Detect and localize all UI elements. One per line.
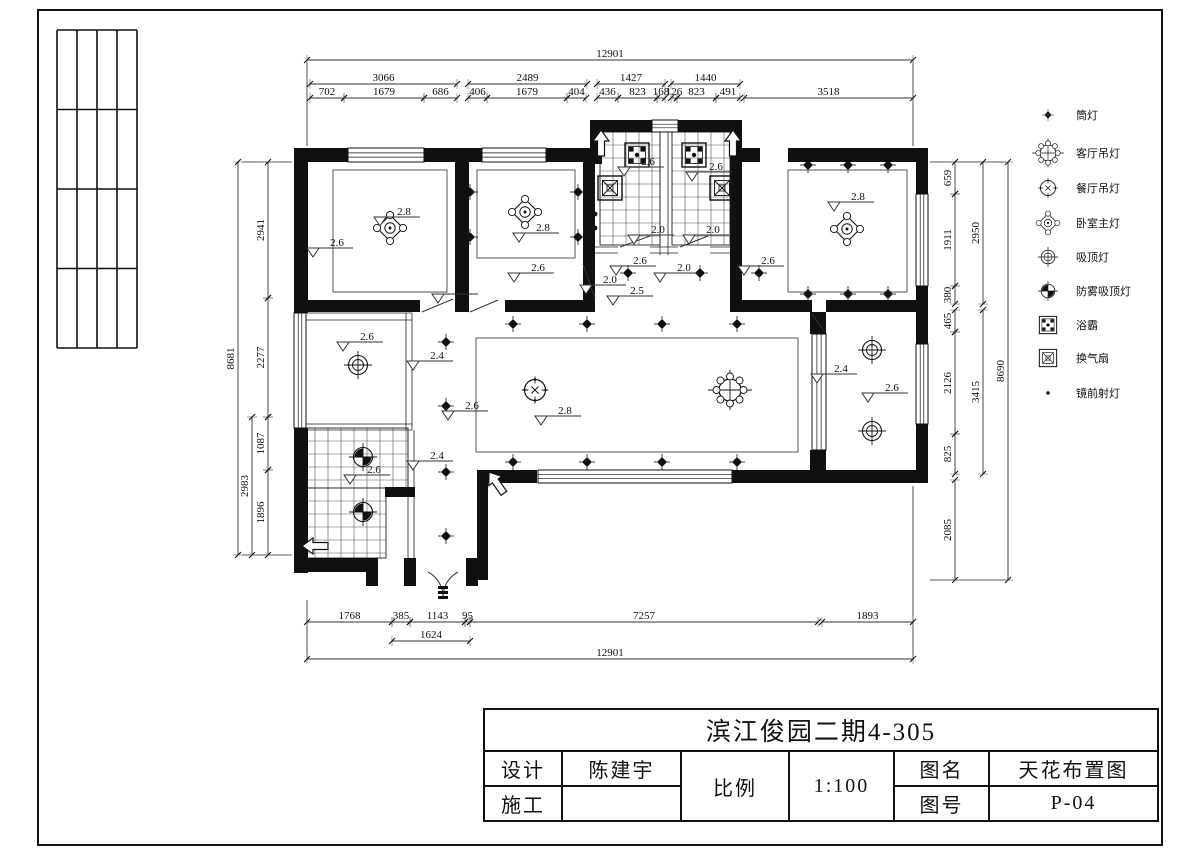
- dim-label: 825: [942, 445, 954, 462]
- downlight-icon: [1028, 98, 1068, 132]
- dim-label: 1427: [620, 72, 643, 84]
- fog-ceiling-lamp-symbol: [1038, 281, 1058, 301]
- wall: [505, 300, 585, 312]
- dim-label: 1143: [427, 610, 449, 622]
- dim-label: 1911: [942, 229, 954, 251]
- elevation-marker: 2.4: [407, 350, 453, 370]
- dim-label: 2.6: [633, 255, 647, 267]
- downlight-symbol: [800, 286, 816, 302]
- dim-label: 2.4: [430, 350, 444, 362]
- dim-label: 659: [942, 169, 954, 186]
- mirror-spotlight-symbol: [736, 212, 741, 217]
- window: [652, 120, 678, 132]
- dim-label: 2.0: [651, 224, 665, 236]
- legend-label: 吸顶灯: [1076, 249, 1109, 265]
- elevation-marker: 2.6: [442, 400, 488, 420]
- dim-label: 2.6: [709, 161, 723, 173]
- threshold-hatch: [438, 586, 448, 589]
- legend-label: 卧室主灯: [1076, 215, 1120, 231]
- design-label: 设计: [485, 752, 561, 787]
- downlight-symbol: [1042, 109, 1054, 121]
- wall: [385, 487, 415, 497]
- dim-label: 1679: [516, 86, 539, 98]
- elevation-marker: 2.6: [862, 382, 908, 402]
- downlight-symbol: [880, 286, 896, 302]
- dining-chandelier-icon: [1028, 171, 1068, 205]
- dim-label: 2.8: [558, 405, 572, 417]
- dim-label: 2.8: [851, 191, 865, 203]
- dim-label: 2.6: [531, 262, 545, 274]
- window: [294, 313, 306, 428]
- elevation-marker: 2.0: [628, 224, 674, 244]
- downlight-symbol: [438, 464, 454, 480]
- dim-label: 8690: [995, 360, 1007, 383]
- wall: [366, 558, 378, 586]
- dimension-chain: 8690: [995, 159, 1013, 583]
- dim-label: 2.0: [455, 283, 469, 295]
- bedroom-main-symbol: [830, 212, 863, 245]
- dim-label: 385: [393, 610, 410, 622]
- dimension-chain: 8681: [225, 159, 243, 558]
- wall: [404, 558, 416, 586]
- dim-label: 823: [688, 86, 705, 98]
- bath-heater-symbol: [682, 143, 706, 167]
- threshold-hatch: [438, 591, 448, 594]
- dim-label: 2.8: [536, 222, 550, 234]
- fog-ceiling-lamp-icon: [1028, 274, 1068, 308]
- window: [348, 148, 424, 162]
- ceiling-lamp-symbol: [858, 417, 886, 445]
- dim-label: 406: [469, 86, 486, 98]
- exhaust-fan-symbol: [1039, 349, 1056, 366]
- legend-item-bath-heater: 浴霸: [1028, 308, 1098, 342]
- scale-label: 比例: [682, 752, 788, 820]
- downlight-symbol: [438, 334, 454, 350]
- wall: [294, 300, 344, 312]
- dim-label: 2.5: [630, 285, 644, 297]
- elevation-marker: 2.6: [508, 262, 554, 282]
- dim-label: 7257: [633, 610, 656, 622]
- downlight-symbol: [654, 454, 670, 470]
- dimension-chain: 2941227710871896: [255, 159, 273, 558]
- dim-label: 1893: [857, 610, 880, 622]
- dimension-chain: 29503415: [970, 159, 988, 477]
- dim-label: 2489: [517, 72, 540, 84]
- living-chandelier-symbol: [708, 370, 752, 410]
- dim-label: 465: [942, 312, 954, 329]
- window: [916, 194, 928, 286]
- dim-label: 2.6: [360, 331, 374, 343]
- dim-label: 2.8: [397, 206, 411, 218]
- window: [538, 470, 732, 483]
- dim-label: 3518: [818, 86, 841, 98]
- wall: [916, 162, 928, 194]
- legend-item-mirror-spotlight: 镜前射灯: [1028, 376, 1120, 410]
- title-block: 滨江俊园二期4-305 设计 施工 陈建宇 比例 1:100 图名 图号 天花布…: [483, 708, 1159, 822]
- legend-label: 筒灯: [1076, 107, 1098, 123]
- downlight-symbol: [438, 528, 454, 544]
- legend-label: 餐厅吊灯: [1076, 180, 1120, 196]
- wall: [546, 148, 592, 162]
- elevation-marker: 2.8: [828, 191, 874, 211]
- downlight-symbol: [579, 316, 595, 332]
- legend-item-bedroom-main: 卧室主灯: [1028, 206, 1120, 240]
- downlight-symbol: [729, 454, 745, 470]
- elevation-marker: 2.8: [374, 206, 420, 226]
- dim-label: 3415: [970, 381, 982, 404]
- downlight-symbol: [751, 265, 767, 281]
- dim-label: 2277: [255, 346, 267, 369]
- downlight-symbol: [840, 286, 856, 302]
- ceiling-lamp-symbol: [344, 351, 372, 379]
- fold-grid: [57, 30, 137, 348]
- dim-label: 2.6: [465, 400, 479, 412]
- mirror-spotlight-icon: [1028, 376, 1068, 410]
- dim-label: 8681: [225, 348, 237, 370]
- elevation-marker: 2.0: [683, 224, 729, 244]
- mirror-spotlight-symbol: [593, 212, 598, 217]
- door-swing: [443, 572, 458, 598]
- wall: [294, 148, 308, 313]
- drawing-name-label: 图名: [895, 752, 988, 787]
- dim-label: 491: [720, 86, 737, 98]
- dim-label: 823: [629, 86, 646, 98]
- legend-label: 防雾吸顶灯: [1076, 283, 1131, 299]
- downlight-symbol: [505, 454, 521, 470]
- window: [812, 334, 826, 450]
- downlight-symbol: [505, 316, 521, 332]
- wall: [294, 558, 366, 572]
- dim-label: 2983: [239, 475, 251, 498]
- legend-item-fog-ceiling-lamp: 防雾吸顶灯: [1028, 274, 1131, 308]
- dim-label: 2941: [255, 219, 267, 241]
- elevation-marker: 2.6: [337, 331, 383, 351]
- dim-label: 2.6: [367, 464, 381, 476]
- elevation-marker: 2.6: [610, 255, 656, 275]
- dim-label: 2.6: [885, 382, 899, 394]
- dim-label: 1896: [255, 501, 267, 524]
- ceiling-lamp-symbol: [1038, 247, 1058, 267]
- dim-label: 2.6: [761, 255, 775, 267]
- dim-label: 126: [666, 86, 683, 98]
- dim-label: 1768: [339, 610, 362, 622]
- wall: [732, 470, 928, 483]
- dim-label: 2.6: [330, 237, 344, 249]
- wall: [742, 148, 760, 162]
- dim-label: 3066: [373, 72, 396, 84]
- legend-item-exhaust-fan: 换气扇: [1028, 341, 1109, 375]
- dim-label: 2085: [942, 519, 954, 542]
- dim-label: 1087: [255, 432, 267, 455]
- legend-item-dining-chandelier: 餐厅吊灯: [1028, 171, 1120, 205]
- dim-label: 2.0: [603, 274, 617, 286]
- wall: [344, 300, 420, 312]
- downlight-symbol: [729, 316, 745, 332]
- bath-heater-icon: [1028, 308, 1068, 342]
- dining-chandelier-symbol: [1038, 178, 1057, 197]
- living-chandelier-icon: [1028, 136, 1068, 170]
- legend-item-living-chandelier: 客厅吊灯: [1028, 136, 1120, 170]
- ceiling-recess: [477, 170, 575, 258]
- dim-label: 12901: [596, 647, 624, 659]
- dim-label: 2.6: [641, 156, 655, 168]
- dim-label: 2.0: [677, 262, 691, 274]
- ceiling-recess: [476, 338, 798, 452]
- elevation-marker: 2.8: [535, 405, 581, 425]
- dim-label: 2.0: [706, 224, 720, 236]
- wall: [294, 428, 308, 573]
- wall: [477, 470, 488, 580]
- legend-label: 换气扇: [1076, 350, 1109, 366]
- designer-name: 陈建宇: [563, 752, 680, 787]
- wall: [730, 300, 812, 312]
- window: [482, 148, 546, 162]
- wall: [826, 300, 928, 312]
- wall: [788, 148, 928, 162]
- dim-label: 1440: [695, 72, 718, 84]
- dim-label: 404: [568, 86, 585, 98]
- drawing-name-value: 天花布置图: [990, 752, 1157, 787]
- scale-value: 1:100: [790, 752, 893, 820]
- ceiling-grid: [302, 428, 408, 488]
- wall: [424, 148, 482, 162]
- exhaust-fan-symbol: [598, 176, 622, 200]
- ceiling-recess: [333, 170, 447, 292]
- dim-label: 702: [319, 86, 336, 98]
- dim-label: 2.4: [834, 363, 848, 375]
- wall: [294, 148, 348, 162]
- window: [916, 344, 928, 424]
- dimension-chain: 12901: [304, 647, 916, 664]
- dimension-chain: 176838511439572571893: [304, 610, 916, 627]
- dimension-chain: 659191138046521268252085: [942, 159, 960, 583]
- wall: [730, 162, 742, 312]
- dimension-chain: 12901: [304, 48, 916, 65]
- mirror-spotlight-symbol: [1046, 391, 1049, 394]
- door-swing: [428, 572, 443, 598]
- mirror-spotlight-symbol: [736, 226, 741, 231]
- bath-heater-symbol: [1039, 316, 1056, 333]
- drawing-no-label: 图号: [895, 787, 988, 820]
- constructor-name: [563, 787, 680, 820]
- legend-label: 客厅吊灯: [1076, 145, 1120, 161]
- dining-chandelier-symbol: [522, 377, 549, 404]
- dimension-chain: 7021679686406167940443682316812682349135…: [307, 86, 916, 103]
- elevation-marker: 2.0: [654, 262, 700, 282]
- wall: [466, 558, 478, 586]
- dim-label: 436: [599, 86, 616, 98]
- ceiling-lamp-icon: [1028, 240, 1068, 274]
- ceiling-recess: [788, 170, 907, 292]
- downlight-symbol: [620, 265, 636, 281]
- dim-label: 1624: [420, 629, 443, 641]
- dim-label: 12901: [596, 48, 624, 60]
- dim-label: 1679: [373, 86, 396, 98]
- downlight-symbol: [579, 454, 595, 470]
- dim-label: 686: [432, 86, 449, 98]
- door-swing: [470, 300, 498, 312]
- downlight-symbol: [654, 316, 670, 332]
- project-title: 滨江俊园二期4-305: [485, 710, 1157, 752]
- wall: [916, 286, 928, 344]
- bedroom-main-symbol: [1036, 211, 1060, 235]
- dim-label: 380: [942, 286, 954, 303]
- mirror-spotlight-symbol: [593, 226, 598, 231]
- wall: [455, 300, 469, 312]
- elevation-marker: 2.5: [607, 285, 653, 305]
- ceiling-lamp-symbol: [858, 336, 886, 364]
- dim-label: 2950: [970, 222, 982, 245]
- legend-item-downlight: 筒灯: [1028, 98, 1098, 132]
- elevation-marker: 2.6: [307, 237, 353, 257]
- construct-label: 施工: [485, 787, 561, 820]
- dim-label: 2.4: [430, 450, 444, 462]
- drawing-sheet: 2.82.62.82.62.02.62.62.02.02.62.02.52.02…: [0, 0, 1200, 855]
- legend-label: 镜前射灯: [1076, 385, 1120, 401]
- living-chandelier-symbol: [1032, 139, 1064, 168]
- elevation-marker: 2.8: [513, 222, 559, 242]
- legend-label: 浴霸: [1076, 317, 1098, 333]
- dim-label: 2126: [942, 372, 954, 395]
- threshold-hatch: [438, 596, 448, 599]
- fog-ceiling-lamp-symbol: [349, 498, 377, 526]
- exhaust-fan-icon: [1028, 341, 1068, 375]
- legend-item-ceiling-lamp: 吸顶灯: [1028, 240, 1109, 274]
- drawing-no-value: P-04: [990, 787, 1157, 820]
- dimension-chain: 1624: [389, 629, 473, 646]
- bedroom-main-light-icon: [1028, 206, 1068, 240]
